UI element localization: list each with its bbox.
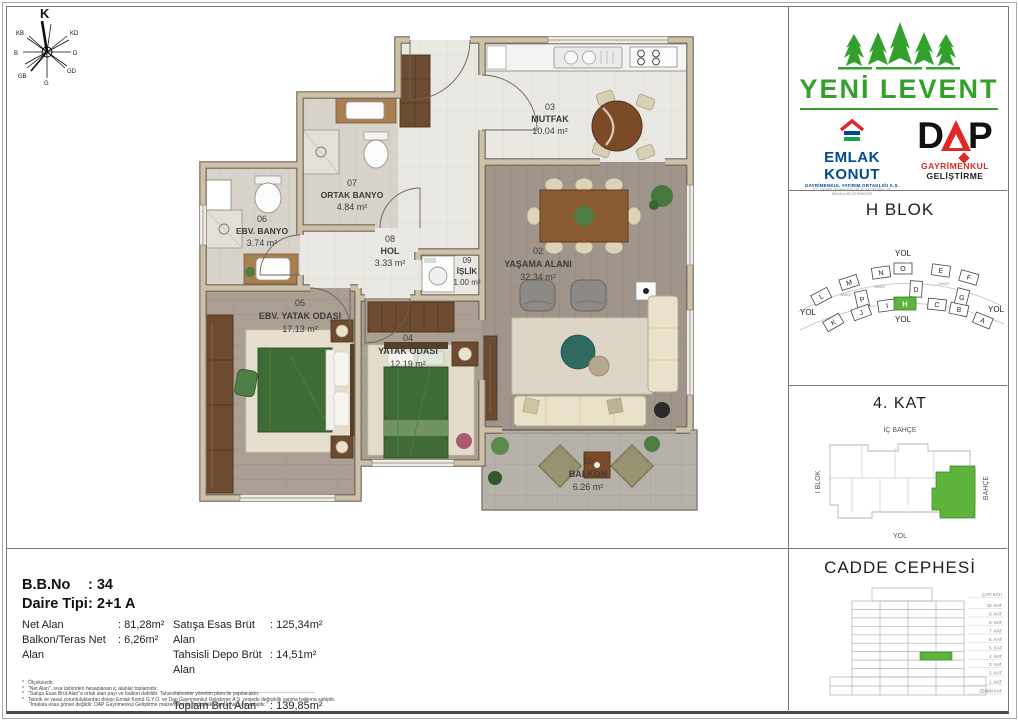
room-area: 32.34 m² bbox=[520, 272, 556, 282]
svg-text:YOL: YOL bbox=[988, 305, 1005, 314]
room-no: 02 bbox=[533, 246, 543, 256]
svg-text:YOL: YOL bbox=[895, 315, 912, 324]
svg-text:BAHÇE: BAHÇE bbox=[841, 293, 852, 297]
project-name: YENİ LEVENT bbox=[791, 74, 1007, 105]
room-area: 3.74 m² bbox=[247, 238, 278, 248]
divider-info bbox=[6, 548, 1007, 549]
svg-text:5. KAT: 5. KAT bbox=[989, 645, 1002, 650]
shaft-box bbox=[205, 180, 231, 210]
room-no: 05 bbox=[295, 298, 305, 308]
site-plan: L M N O E F P D G K J I H C B A BAHÇE BA… bbox=[790, 226, 1008, 382]
compass-w: B bbox=[14, 51, 18, 57]
svg-text:6. KAT: 6. KAT bbox=[989, 637, 1002, 642]
net-alan-value: : 81,28m² bbox=[118, 618, 164, 633]
svg-text:7. KAT: 7. KAT bbox=[989, 628, 1002, 633]
compass-nw: KB bbox=[16, 31, 24, 37]
compass-n: K bbox=[40, 6, 50, 21]
daire-tipi-row: Daire Tipi : 2+1 A bbox=[22, 595, 762, 614]
balkon-row: Balkon/Teras Net Alan : 6,26m² bbox=[22, 633, 173, 663]
svg-text:BAHÇE: BAHÇE bbox=[939, 282, 950, 286]
emlak-konut-name: EMLAK KONUT bbox=[804, 149, 900, 183]
logo-rule bbox=[800, 108, 998, 110]
floor-panel: 4. KAT İÇ BAHÇE I BLOK BAHÇE YOL bbox=[790, 387, 1008, 547]
svg-text:1. KAT: 1. KAT bbox=[989, 680, 1002, 685]
facade-panel: CADDE CEPHESİ ÇATI KATI 10. KAT 9. KAT 8… bbox=[790, 550, 1008, 710]
daire-tipi-value: : 2+1 A bbox=[88, 595, 135, 614]
dap-letter-d: D bbox=[917, 121, 944, 151]
trees-logo bbox=[836, 16, 962, 72]
label-i-blok: I BLOK bbox=[815, 470, 822, 493]
facade-panel-title: CADDE CEPHESİ bbox=[790, 558, 1010, 578]
block-panel-title: H BLOK bbox=[790, 200, 1010, 220]
room-name: MUTFAK bbox=[531, 114, 569, 124]
room-area: 3.33 m² bbox=[375, 258, 406, 268]
label-yol: YOL bbox=[893, 533, 907, 540]
svg-text:ZEMİN KAT: ZEMİN KAT bbox=[979, 689, 1002, 694]
svg-text:YOL: YOL bbox=[895, 249, 912, 258]
room-area: 1.00 m² bbox=[453, 278, 480, 287]
bb-no-row: B.B.No : 34 bbox=[22, 576, 762, 595]
label-ic-bahce: İÇ BAHÇE bbox=[883, 425, 916, 434]
room-no: 09 bbox=[463, 256, 472, 265]
balkon-label: Balkon/Teras Net Alan bbox=[22, 633, 118, 663]
net-alan-row: Net Alan : 81,28m² bbox=[22, 618, 173, 633]
room-area: 12.19 m² bbox=[390, 359, 426, 369]
facade-elevation: ÇATI KATI 10. KAT 9. KAT 8. KAT 7. KAT 6… bbox=[790, 580, 1008, 708]
compass-ne: KD bbox=[70, 31, 79, 37]
dap-subtitle-red: GAYRİMENKUL bbox=[921, 161, 989, 171]
room-no: 04 bbox=[403, 333, 413, 343]
room-name: İŞLİK bbox=[457, 267, 478, 276]
compass-s: G bbox=[44, 81, 49, 87]
room-no: 08 bbox=[385, 234, 395, 244]
dap-logo: D P GAYRİMENKUL GELİŞTİRME bbox=[912, 120, 998, 181]
room-area: 4.84 m² bbox=[337, 202, 368, 212]
satis-row: Satışa Esas Brüt Alan : 125,34m² bbox=[173, 618, 373, 648]
compass-e: D bbox=[73, 51, 78, 57]
emlak-konut-logo: EMLAK KONUT GAYRİMENKUL YATIRIM ORTAKLIĞ… bbox=[804, 118, 900, 196]
net-alan-label: Net Alan bbox=[22, 618, 118, 633]
logo-panel: YENİ LEVENT EMLAK KONUT GAYRİMENKUL YATI… bbox=[790, 8, 1008, 190]
bb-no-value: : 34 bbox=[88, 576, 113, 595]
satis-label: Satışa Esas Brüt Alan bbox=[173, 618, 270, 648]
svg-text:4. KAT: 4. KAT bbox=[989, 654, 1002, 659]
svg-text:O: O bbox=[900, 266, 906, 273]
dap-subtitle-black: GELİŞTİRME bbox=[927, 171, 984, 181]
room-name: EBV. YATAK ODASI bbox=[259, 311, 341, 321]
room-no: 03 bbox=[545, 102, 555, 112]
depo-row: Tahsisli Depo Brüt Alan : 14,51m² bbox=[173, 648, 373, 678]
washer bbox=[422, 256, 454, 292]
room-area: 6.26 m² bbox=[573, 482, 604, 492]
room-name: BALKON bbox=[569, 469, 608, 479]
highlight-block: H bbox=[894, 297, 916, 310]
plan-sheet: K KD D GD G GB B KB bbox=[0, 0, 1018, 720]
dap-triangle-icon bbox=[941, 120, 971, 151]
svg-text:10. KAT: 10. KAT bbox=[987, 603, 1003, 608]
svg-text:C: C bbox=[934, 302, 940, 309]
highlight-floor-cell bbox=[920, 652, 952, 660]
emlak-konut-icon bbox=[837, 118, 867, 144]
facade-floor-labels: ÇATI KATI 10. KAT 9. KAT 8. KAT 7. KAT 6… bbox=[979, 592, 1002, 694]
svg-text:3. KAT: 3. KAT bbox=[989, 662, 1002, 667]
room-name: YAŞAMA ALANI bbox=[504, 259, 572, 269]
compass-se: GD bbox=[67, 69, 77, 75]
room-name: ORTAK BANYO bbox=[321, 190, 384, 200]
disclaimer: * Ölçeksizdir. * "Net Alan", sıva üstünd… bbox=[22, 681, 762, 709]
compass-rose bbox=[23, 21, 71, 78]
floor-panel-title: 4. KAT bbox=[790, 395, 1010, 413]
satis-value: : 125,34m² bbox=[270, 618, 323, 648]
svg-text:BAHÇE: BAHÇE bbox=[875, 285, 886, 289]
floor-key-plan: İÇ BAHÇE I BLOK BAHÇE YOL bbox=[790, 417, 1008, 545]
label-bahce: BAHÇE bbox=[983, 476, 990, 500]
balkon-value: : 6,26m² bbox=[118, 633, 158, 663]
depo-label: Tahsisli Depo Brüt Alan bbox=[173, 648, 270, 678]
dap-letter-p: P bbox=[968, 121, 993, 151]
room-name: HOL bbox=[381, 246, 401, 256]
room-no: 06 bbox=[257, 214, 267, 224]
divider-kat bbox=[789, 385, 1007, 386]
disclaimer-line: "İmalata esas görsel değildir. DAP Gayri… bbox=[22, 703, 762, 709]
compass-sw: GB bbox=[18, 74, 27, 80]
svg-text:N: N bbox=[878, 270, 884, 278]
highlight-unit bbox=[932, 466, 975, 518]
floorplan-drawing: K KD D GD G GB B KB bbox=[0, 0, 788, 548]
block-panel: H BLOK L M N O E F P D G K J I H C B A bbox=[790, 192, 1008, 384]
room-no: 07 bbox=[347, 178, 357, 188]
svg-text:YOL: YOL bbox=[800, 308, 817, 317]
room-no: 10 bbox=[583, 456, 593, 466]
svg-text:8. KAT: 8. KAT bbox=[989, 620, 1002, 625]
svg-text:D: D bbox=[913, 287, 918, 294]
room-area: 10.04 m² bbox=[532, 126, 568, 136]
daire-tipi-label: Daire Tipi bbox=[22, 595, 88, 614]
room-name: EBV. BANYO bbox=[236, 226, 289, 236]
svg-text:9. KAT: 9. KAT bbox=[989, 612, 1002, 617]
svg-text:H: H bbox=[902, 300, 907, 309]
svg-text:ÇATI KATI: ÇATI KATI bbox=[982, 592, 1002, 597]
sidebar-divider bbox=[788, 6, 789, 712]
depo-value: : 14,51m² bbox=[270, 648, 316, 678]
room-area: 17.13 m² bbox=[282, 324, 318, 334]
svg-text:2. KAT: 2. KAT bbox=[989, 671, 1002, 676]
room-name: YATAK ODASI bbox=[378, 346, 438, 356]
bb-no-label: B.B.No bbox=[22, 576, 88, 595]
